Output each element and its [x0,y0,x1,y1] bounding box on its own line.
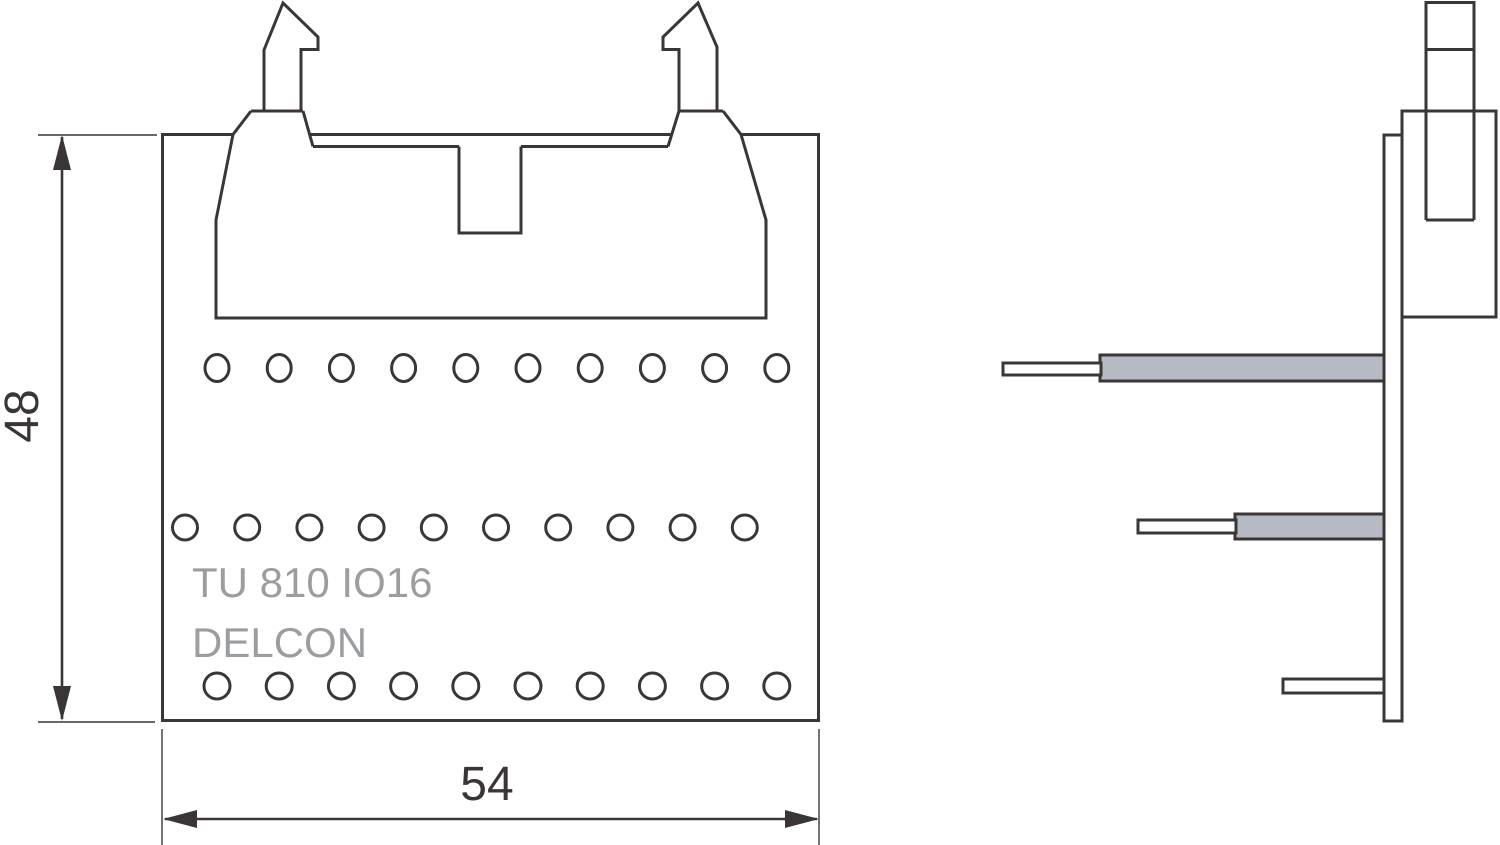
center-tab [459,147,521,234]
drawing-canvas: TU 810 IO16 DELCON 48 54 [0,0,1500,845]
terminal-hole [516,355,540,382]
terminal-hole [392,355,416,382]
terminal-hole [484,515,509,540]
pin-middle-sleeve [1235,514,1392,539]
terminal-hole [328,673,354,699]
arrowhead-down-icon [53,686,71,721]
terminal-hole [204,673,230,699]
front-view: TU 810 IO16 DELCON [163,3,819,721]
terminal-hole [608,515,633,540]
terminal-hole [515,673,541,699]
side-view [1003,3,1496,722]
terminal-hole [732,515,757,540]
pin-bottom-tip [1283,679,1392,693]
terminal-hole [267,355,291,382]
arrowhead-up-icon [53,135,71,170]
terminal-hole [329,355,353,382]
mounting-clip-right [663,3,717,111]
terminal-hole [235,515,260,540]
dimension-height: 48 [0,135,157,722]
height-dimension-value: 48 [0,389,49,442]
terminal-hole [640,355,664,382]
dimension-width: 54 [162,729,819,845]
terminal-hole [391,673,417,699]
terminal-hole [297,515,322,540]
terminal-hole [173,515,198,540]
terminal-hole [703,355,727,382]
terminal-hole [546,515,571,540]
pin-middle-tip [1138,520,1236,533]
terminal-hole [670,515,695,540]
arrowhead-left-icon [163,810,197,828]
arrowhead-right-icon [785,810,819,828]
part-number-label: TU 810 IO16 [192,559,432,606]
relay-block-side [1402,111,1496,317]
terminal-hole [577,673,603,699]
terminal-hole [453,673,479,699]
pin-top-sleeve [1100,355,1392,381]
terminal-hole [421,515,446,540]
mounting-clip-left [264,3,318,111]
terminal-hole [578,355,602,382]
technical-drawing: TU 810 IO16 DELCON 48 54 [0,0,1500,845]
pin-top-tip [1003,363,1101,375]
mounting-plate-side [1384,135,1402,721]
terminal-hole [764,673,790,699]
terminal-hole [359,515,384,540]
brand-label: DELCON [192,619,367,666]
terminal-hole [266,673,292,699]
terminal-hole [639,673,665,699]
width-dimension-value: 54 [460,758,513,811]
terminal-hole [454,355,478,382]
terminal-hole [765,355,789,382]
relay-module-outline [216,111,766,318]
terminal-hole [702,673,728,699]
terminal-hole [205,355,229,382]
